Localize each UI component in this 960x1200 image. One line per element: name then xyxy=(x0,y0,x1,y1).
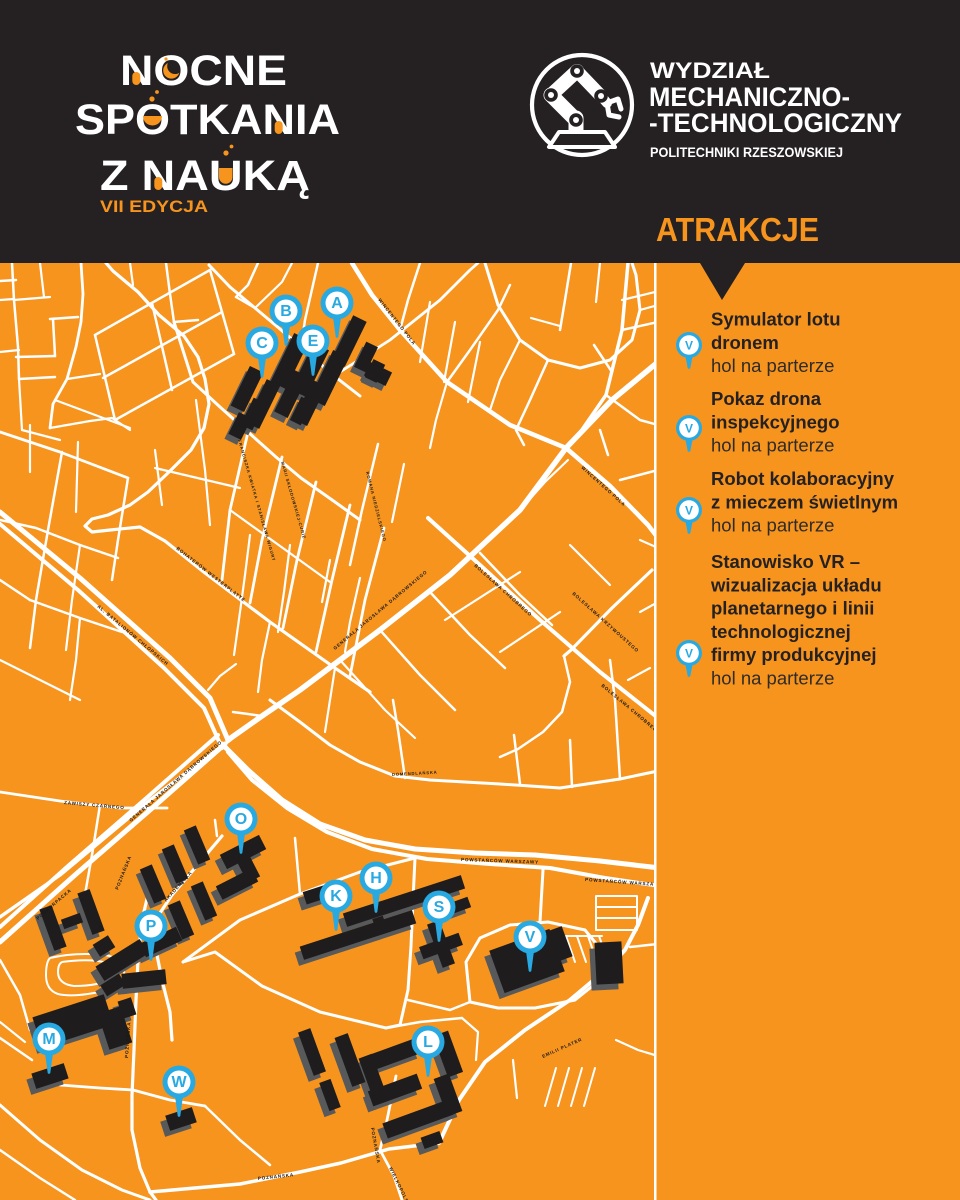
svg-text:inspekcyjnego: inspekcyjnego xyxy=(711,411,840,432)
svg-text:WYDZIAŁ: WYDZIAŁ xyxy=(650,58,770,83)
svg-text:planetarnego i linii: planetarnego i linii xyxy=(711,598,874,619)
svg-text:firmy produkcyjnej: firmy produkcyjnej xyxy=(711,644,877,665)
svg-text:Robot kolaboracyjny: Robot kolaboracyjny xyxy=(711,468,895,489)
svg-text:NOCNE: NOCNE xyxy=(120,47,287,95)
svg-text:A: A xyxy=(331,295,343,312)
svg-text:V: V xyxy=(685,504,693,518)
svg-text:dronem: dronem xyxy=(711,332,779,353)
svg-text:H: H xyxy=(370,870,382,887)
svg-text:V: V xyxy=(685,422,693,436)
svg-text:O: O xyxy=(235,811,247,828)
svg-text:Stanowisko VR –: Stanowisko VR – xyxy=(711,551,860,572)
svg-text:B: B xyxy=(280,303,292,320)
svg-text:V: V xyxy=(525,929,536,946)
svg-text:-TECHNOLOGICZNY: -TECHNOLOGICZNY xyxy=(649,108,902,138)
svg-text:hol na parterze: hol na parterze xyxy=(711,435,834,456)
svg-text:hol na parterze: hol na parterze xyxy=(711,668,834,689)
svg-text:POLITECHNIKI RZESZOWSKIEJ: POLITECHNIKI RZESZOWSKIEJ xyxy=(650,145,843,160)
svg-text:ATRAKCJE: ATRAKCJE xyxy=(656,211,819,248)
svg-text:Pokaz drona: Pokaz drona xyxy=(711,388,822,409)
svg-text:z mieczem świetlnym: z mieczem świetlnym xyxy=(711,491,898,512)
svg-text:C: C xyxy=(256,335,268,352)
svg-text:technologicznej: technologicznej xyxy=(711,621,851,642)
svg-text:V: V xyxy=(685,339,693,353)
svg-text:hol na parterze: hol na parterze xyxy=(711,355,834,376)
svg-text:P: P xyxy=(146,918,157,935)
svg-text:wizualizacja układu: wizualizacja układu xyxy=(710,574,882,595)
svg-text:Z NAUKĄ: Z NAUKĄ xyxy=(100,152,310,200)
svg-text:SPOTKANIA: SPOTKANIA xyxy=(75,96,340,144)
svg-text:hol na parterze: hol na parterze xyxy=(711,515,834,536)
svg-text:Symulator lotu: Symulator lotu xyxy=(711,309,841,330)
svg-text:VII EDYCJA: VII EDYCJA xyxy=(100,197,208,216)
svg-text:W: W xyxy=(171,1074,187,1091)
svg-text:E: E xyxy=(308,333,319,350)
svg-text:M: M xyxy=(42,1031,55,1048)
svg-text:K: K xyxy=(330,888,342,905)
svg-text:L: L xyxy=(423,1034,433,1051)
svg-text:V: V xyxy=(685,647,693,661)
svg-text:S: S xyxy=(434,899,445,916)
